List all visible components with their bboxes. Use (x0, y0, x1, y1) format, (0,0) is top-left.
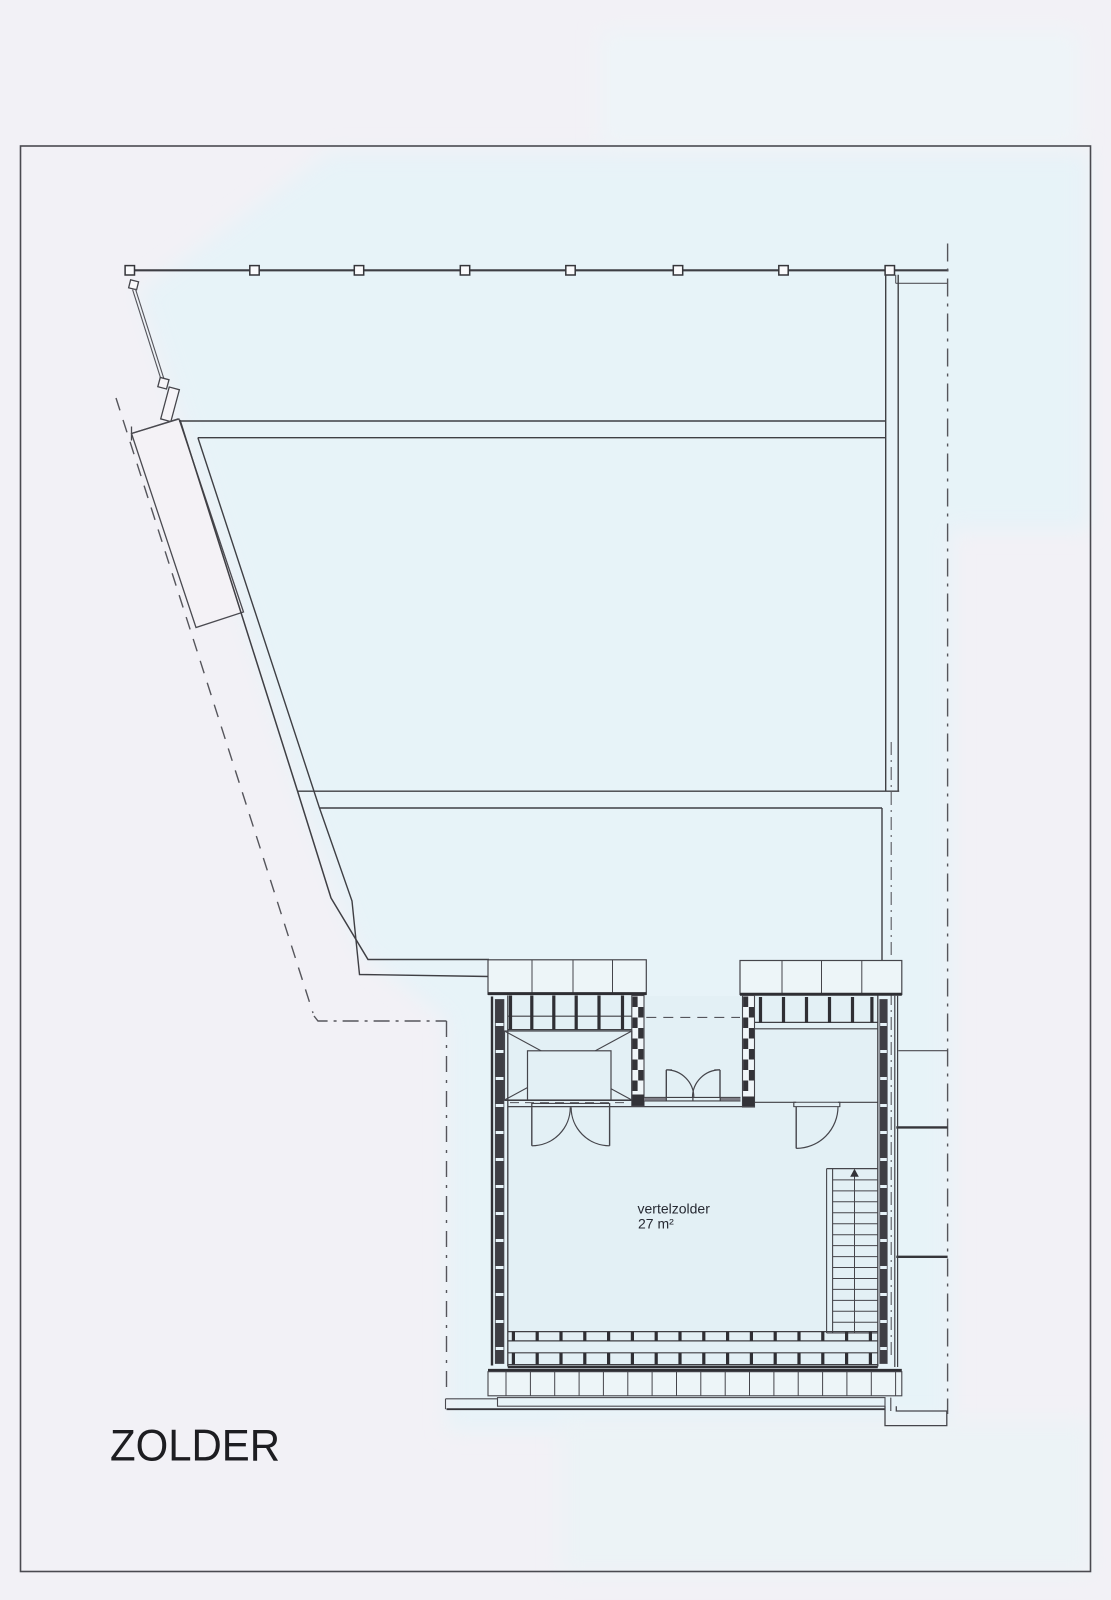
svg-text:27 m²: 27 m² (638, 1216, 674, 1232)
svg-text:vertelzolder: vertelzolder (638, 1201, 711, 1217)
svg-text:ZOLDER: ZOLDER (110, 1422, 280, 1471)
